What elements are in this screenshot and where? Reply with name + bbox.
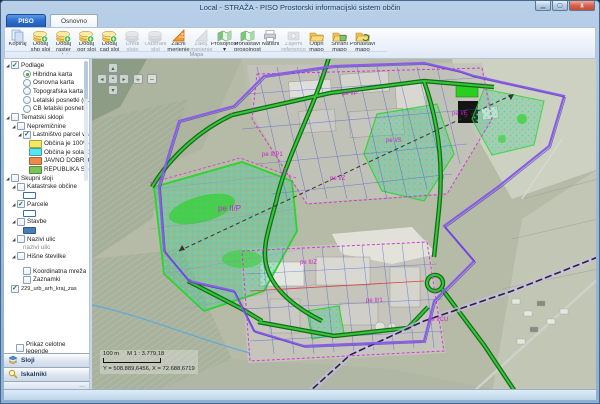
zoom-out-button[interactable]: − bbox=[147, 74, 157, 84]
tree-item-label: Nazivi ulic bbox=[27, 236, 55, 243]
layer-checkbox[interactable] bbox=[17, 200, 25, 208]
tab-piso[interactable]: PISO bbox=[6, 14, 46, 27]
ribbon-button-label: Kopiraj bbox=[8, 42, 26, 48]
title-bar[interactable]: Local - STRAŽA - PISO Prostorski informa… bbox=[1, 1, 599, 14]
tree-item[interactable] bbox=[6, 226, 89, 235]
tree-item-label: Hišne številke bbox=[27, 253, 66, 260]
layer-checkbox[interactable] bbox=[17, 218, 25, 226]
tree-item[interactable]: Zaznamki bbox=[6, 276, 89, 285]
layer-checkbox[interactable] bbox=[17, 252, 25, 260]
legend-toggle-row[interactable]: Prikaz celotne legende bbox=[4, 343, 89, 353]
tree-item-label: ČB letalski posnetki (gurs-arhi) bbox=[33, 105, 89, 112]
tree-item[interactable]: ◢Nepremičnine bbox=[6, 122, 89, 131]
layer-symbol-outline bbox=[23, 210, 36, 217]
tree-item[interactable] bbox=[6, 209, 89, 218]
transparency-icon bbox=[217, 29, 232, 42]
remove-layer-icon bbox=[148, 29, 163, 42]
tree-item-label: Tematski sklopi bbox=[21, 114, 64, 121]
ribbon-group-mapa: Mapa bbox=[6, 51, 387, 58]
status-bar bbox=[4, 389, 596, 400]
pan-up-button[interactable]: ▴ bbox=[108, 63, 118, 73]
legend-swatch bbox=[29, 157, 42, 165]
layer-checkbox[interactable] bbox=[11, 61, 19, 69]
tree-item-label: Skupni sloji bbox=[21, 175, 53, 182]
tree-item-label: Parcele bbox=[27, 201, 48, 208]
reset-map-icon bbox=[355, 29, 370, 42]
scalebar-line bbox=[103, 358, 161, 363]
close-icon: x bbox=[580, 3, 583, 9]
zone-label: pe II/1 bbox=[366, 298, 383, 304]
layer-checkbox[interactable] bbox=[17, 183, 25, 191]
tree-item[interactable]: ◢Stavbe bbox=[6, 217, 89, 226]
ribbon-tab-strip: PISO Osnovno bbox=[4, 14, 596, 27]
tab-osnovno[interactable]: Osnovno bbox=[50, 14, 98, 27]
tree-item[interactable]: ČB letalski posnetki (gurs-arhi) bbox=[6, 104, 89, 113]
tree-item[interactable]: Občina je 100% lastnik bbox=[6, 139, 89, 148]
maximize-button[interactable]: ▢ bbox=[552, 1, 568, 11]
capture-reference-icon bbox=[286, 29, 301, 42]
zone-label: pe II/Z bbox=[300, 260, 317, 266]
tree-item-label: Osnovna karta bbox=[33, 79, 74, 86]
tree-item[interactable]: ◢Tematski sklopi bbox=[6, 113, 89, 122]
tree-item[interactable]: ◢Katastrske občine bbox=[6, 183, 89, 192]
layer-checkbox[interactable] bbox=[23, 131, 31, 139]
layer-symbol-filled bbox=[23, 227, 36, 234]
add-raster-layer-icon bbox=[56, 29, 71, 42]
zone-label: pe I/CU bbox=[428, 317, 448, 323]
panel-button-iskalniki[interactable]: Iskalniki bbox=[4, 367, 89, 381]
sidebar-scrollbar[interactable] bbox=[84, 61, 88, 181]
tree-item-label: nazivi ulic bbox=[23, 244, 50, 251]
tree-item[interactable]: ◢Skupni sloji bbox=[6, 174, 89, 183]
ribbon-button-label: Natisni bbox=[262, 42, 280, 48]
ribbon-group-label: Mapa bbox=[190, 52, 204, 58]
zoom-in-button[interactable]: + bbox=[133, 74, 143, 84]
zone-label: pe I/P bbox=[342, 91, 358, 97]
tree-item[interactable]: ◢Lastništvo parcel v javni las bbox=[6, 131, 89, 140]
layer-checkbox[interactable] bbox=[17, 235, 25, 243]
tree-item[interactable]: ◢Nazivi ulic bbox=[6, 235, 89, 244]
zone-label: pe I/Z bbox=[330, 176, 346, 182]
tree-item-label: Katastrske občine bbox=[27, 183, 77, 190]
reset-transparency-icon bbox=[240, 29, 255, 42]
basemap-radio[interactable] bbox=[23, 79, 31, 87]
tree-item-label: 229_urb_arh_kraj_zas bbox=[21, 286, 77, 292]
start-measure-icon bbox=[171, 29, 186, 42]
layer-checkbox[interactable] bbox=[11, 285, 19, 293]
tree-item[interactable]: nazivi ulic bbox=[6, 243, 89, 252]
tree-item-label: REPUBLIKA SLOVENIJA bbox=[44, 166, 89, 173]
layer-checkbox[interactable] bbox=[17, 122, 25, 130]
zone-label: pe II/P1 bbox=[262, 152, 283, 158]
panel-button-sloji[interactable]: Sloji bbox=[4, 353, 89, 367]
save-map-icon bbox=[332, 29, 347, 42]
layers-sidebar: ◢PodlageHibridna kartaOsnovna kartaTopog… bbox=[4, 59, 90, 390]
scale-ratio: M 1 : 3.779,18 bbox=[127, 351, 164, 358]
tree-item-label: Koordinatna mreža bbox=[33, 268, 86, 275]
close-button[interactable]: x bbox=[569, 1, 595, 11]
panel-label-iskalniki: Iskalniki bbox=[21, 371, 47, 378]
tree-item-label: Občina je 100% lastnik bbox=[44, 140, 89, 147]
tree-item-label: Topografska karta bbox=[33, 88, 83, 95]
tree-item-label: Občina je solastnik bbox=[44, 149, 89, 156]
tree-item[interactable]: Hibridna karta bbox=[6, 70, 89, 79]
layers-icon bbox=[8, 355, 18, 367]
tree-item-label: Lastništvo parcel v javni las bbox=[33, 131, 89, 138]
add-shp-layer-icon bbox=[33, 29, 48, 42]
tree-item[interactable]: 229_urb_arh_kraj_zas bbox=[6, 284, 89, 293]
cursor-coordinates: Y = 508.889,6456, X = 72.688,6719 bbox=[103, 366, 195, 373]
end-measure-icon bbox=[194, 29, 209, 42]
layer-symbol-outline bbox=[23, 192, 36, 199]
edit-layers-icon bbox=[125, 29, 140, 42]
tree-item[interactable]: Koordinatna mreža bbox=[6, 267, 89, 276]
scalebar-label: 100 m bbox=[103, 351, 119, 358]
legend-swatch bbox=[29, 166, 42, 174]
tree-item[interactable] bbox=[6, 191, 89, 200]
basemap-radio[interactable] bbox=[23, 70, 31, 78]
tree-item-label: Letalski posnetki (gurs) bbox=[33, 97, 89, 104]
layer-tree: ◢PodlageHibridna kartaOsnovna kartaTopog… bbox=[4, 59, 89, 343]
add-cad-layer-icon bbox=[102, 29, 117, 42]
tree-item[interactable]: Občina je solastnik bbox=[6, 148, 89, 157]
open-map-icon bbox=[309, 29, 324, 42]
tree-item[interactable]: Topografska karta bbox=[6, 87, 89, 96]
pan-right-button[interactable]: ▸ bbox=[119, 74, 129, 84]
print-icon bbox=[263, 29, 278, 42]
add-ogr-layer-icon bbox=[79, 29, 94, 42]
basemap-radio[interactable] bbox=[23, 96, 31, 104]
zone-label: pe I/S bbox=[386, 138, 402, 144]
tree-item[interactable]: Letalski posnetki (gurs) bbox=[6, 96, 89, 105]
basemap-radio[interactable] bbox=[23, 105, 31, 113]
search-icon bbox=[8, 369, 18, 381]
pan-left-button[interactable]: ◂ bbox=[97, 74, 107, 84]
tree-item[interactable]: ◢Hišne številke bbox=[6, 252, 89, 261]
tree-item[interactable]: ◢Parcele bbox=[6, 200, 89, 209]
tree-item-label: Hibridna karta bbox=[33, 71, 72, 78]
app-window: Local - STRAŽA - PISO Prostorski informa… bbox=[0, 0, 600, 404]
zone-label: pe II/P bbox=[218, 204, 241, 213]
tree-item-label: Zaznamki bbox=[33, 276, 60, 283]
tree-item[interactable]: REPUBLIKA SLOVENIJA bbox=[6, 165, 89, 174]
tree-item-label: Podlage bbox=[21, 62, 44, 69]
pan-down-button[interactable]: ▾ bbox=[108, 85, 118, 95]
tree-item-label: Stavbe bbox=[27, 218, 47, 225]
tree-item[interactable]: JAVNO DOBRO, SPLOŠN bbox=[6, 157, 89, 166]
zone-label: pe I/E bbox=[452, 111, 468, 117]
legend-swatch bbox=[29, 148, 42, 156]
layer-checkbox[interactable] bbox=[11, 174, 19, 182]
scale-overlay: 100 m M 1 : 3.779,18 Y = 508.889,6456, X… bbox=[100, 350, 198, 374]
tree-item-label: JAVNO DOBRO, SPLOŠN bbox=[44, 157, 89, 164]
pan-center-button[interactable]: ▪ bbox=[108, 74, 118, 84]
copy-icon bbox=[10, 29, 25, 42]
layer-checkbox[interactable] bbox=[23, 276, 31, 284]
layer-checkbox[interactable] bbox=[23, 267, 31, 275]
map-canvas[interactable]: pe II/Ppe II/P1pe I/Zpe I/Spe I/Ppe I/Ep… bbox=[92, 59, 596, 390]
minimize-button[interactable]: ▁ bbox=[535, 1, 551, 11]
panel-label-sloji: Sloji bbox=[21, 357, 35, 364]
window-title: Local - STRAŽA - PISO Prostorski informa… bbox=[200, 3, 401, 12]
legend-swatch bbox=[29, 140, 42, 148]
basemap-radio[interactable] bbox=[23, 87, 31, 95]
tree-item[interactable]: ◢Podlage bbox=[6, 61, 89, 70]
map-navigation-control: ▴ ◂ ▪ ▸ ▾ + − bbox=[97, 63, 157, 95]
legend-toggle-checkbox[interactable] bbox=[16, 344, 24, 352]
layer-checkbox[interactable] bbox=[11, 113, 19, 121]
tree-item-label: Nepremičnine bbox=[27, 123, 66, 130]
tree-item[interactable]: Osnovna karta bbox=[6, 78, 89, 87]
ribbon: Kopiraj Dodaj shp sloj Dodaj raster sloj bbox=[4, 27, 596, 59]
